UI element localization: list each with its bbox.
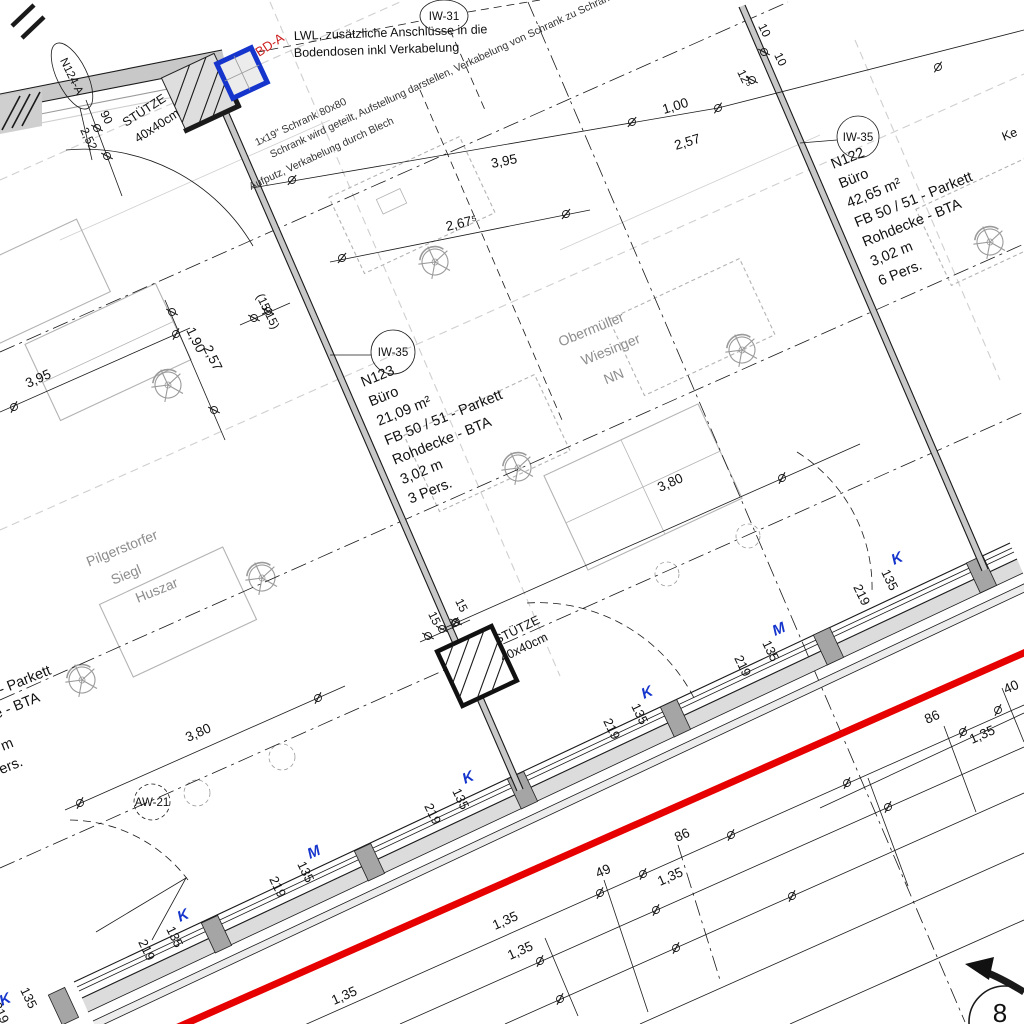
window-tag-k5: K 135 219 <box>850 548 906 608</box>
svg-text:219: 219 <box>731 653 754 679</box>
note-ke-cutoff: Ke <box>1000 125 1019 144</box>
dim-bot-135a: 1,35 <box>490 908 520 932</box>
dim-left-395: 3,95 <box>23 366 53 390</box>
wall-tag-iw31: IW-31 <box>429 11 459 23</box>
svg-text:K: K <box>889 548 907 568</box>
office-chair <box>146 363 188 405</box>
dim-wallr-125: 12⁵ <box>734 67 755 90</box>
dim-left-257: 2,57 <box>200 343 225 373</box>
section-arrow-icon <box>965 957 994 980</box>
office-chair <box>413 240 455 282</box>
svg-text:135: 135 <box>759 638 782 664</box>
dim-int-380a: 3,80 <box>655 470 685 494</box>
dim-top-257: 2,57 <box>672 131 702 153</box>
note-lwl-line2: Bodendosen inkl Verkabelung <box>294 40 460 60</box>
svg-text:K: K <box>460 767 478 787</box>
svg-text:135: 135 <box>163 924 186 950</box>
svg-text:135: 135 <box>878 567 901 593</box>
svg-text:135: 135 <box>17 985 40 1011</box>
dim-bot-135b: 1,35 <box>505 938 535 962</box>
dim-bot-135e: 1,35 <box>329 983 359 1007</box>
svg-text:K: K <box>175 905 193 925</box>
dim-bot-86a: 86 <box>672 825 692 845</box>
dim-wallr-10b: 10 <box>771 50 790 68</box>
section-cut-line <box>160 648 1024 1024</box>
svg-text:219: 219 <box>850 582 873 608</box>
note-bd-a: BD-A <box>252 30 286 60</box>
dim-colb-15b: 15 <box>452 596 471 614</box>
section-marker-number: 8 <box>993 998 1007 1024</box>
dim-bot-49: 49 <box>593 861 613 881</box>
svg-text:219: 219 <box>135 937 158 963</box>
svg-text:M: M <box>770 619 789 640</box>
svg-text:135: 135 <box>628 701 651 727</box>
dim-top-395: 3,95 <box>490 151 519 171</box>
wall-tag-aw21: AW-21 <box>135 797 170 809</box>
dim-top-2675: 2,67⁵ <box>444 212 478 234</box>
svg-text:K: K <box>639 682 657 702</box>
svg-text:219: 219 <box>421 801 444 827</box>
svg-text:219: 219 <box>600 716 623 742</box>
dim-bot-135d: 1,35 <box>967 722 997 746</box>
dim-bot-86b: 86 <box>922 707 942 727</box>
dim-bot-135c: 1,35 <box>655 864 685 888</box>
dim-wall-1515: (15|15) <box>253 291 282 331</box>
window-tag-k1: K 135 219 <box>0 985 40 1024</box>
svg-text:219: 219 <box>266 874 289 900</box>
dim-int-380b: 3,80 <box>183 720 213 744</box>
floor-plan-canvas: IW-31 IW-35 IW-35 N124-A AW-21 3,95 1,00… <box>0 0 1024 1024</box>
corner-marks <box>12 5 44 38</box>
section-marker: 8 <box>965 957 1024 1024</box>
